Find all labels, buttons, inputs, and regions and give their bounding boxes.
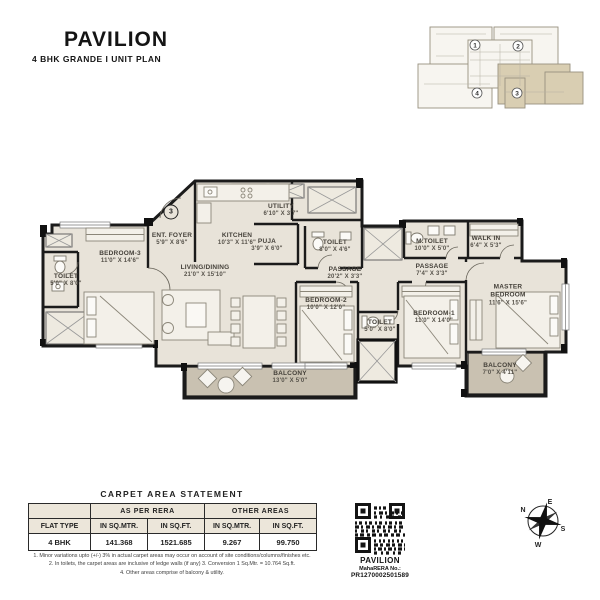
carpet-area-statement: CARPET AREA STATEMENT AS PER RERA OTHER … xyxy=(28,489,316,551)
footnote-line-2: 2. In toilets, the carpet areas are incl… xyxy=(24,560,320,568)
bed-bedroom-3 xyxy=(84,292,154,344)
bed-bedroom-2 xyxy=(300,306,354,362)
page-title: PAVILION xyxy=(32,28,168,52)
key-plan-unit-3: 3 xyxy=(515,91,519,98)
table-group-other-areas: OTHER AREAS xyxy=(205,504,317,519)
page-subtitle: 4 BHK GRANDE I UNIT PLAN xyxy=(32,54,168,64)
rera-number: PR1270002501589 xyxy=(330,572,430,579)
compass-e-label: E xyxy=(548,499,553,506)
room-label-walk-in: WALK IN6'4" X 5'3" xyxy=(470,235,501,251)
room-label-living-dining: LIVING/DINING21'0" X 15'10" xyxy=(181,264,230,280)
table-header-sqft-2: IN SQ.FT. xyxy=(260,519,317,534)
rera-project-name: PAVILION xyxy=(330,556,430,565)
table-header-sqft-1: IN SQ.FT. xyxy=(148,519,205,534)
room-label-passage-2: PASSAGE7'4" X 3'3" xyxy=(416,263,449,279)
table-header-row: FLAT TYPE IN SQ.MTR. IN SQ.FT. IN SQ.MTR… xyxy=(29,519,317,534)
room-label-ent-foyer: ENT. FOYER5'9" X 8'6" xyxy=(152,232,192,248)
table-header-sqmtr-1: IN SQ.MTR. xyxy=(91,519,148,534)
table-cell-other-sqft: 99.750 xyxy=(260,534,317,551)
unit-plan-page: 1 2 4 3 xyxy=(0,0,600,600)
table-group-header-row: AS PER RERA OTHER AREAS xyxy=(29,504,317,519)
table-header-flat-type: FLAT TYPE xyxy=(29,519,91,534)
table-data-row: 4 BHK 141.368 1521.685 9.267 99.750 xyxy=(29,534,317,551)
footnote-line-3: 4. Other areas comprise of balcony & uti… xyxy=(24,569,320,577)
room-label-bedroom-2: BEDROOM-210'0" X 12'0" xyxy=(305,297,347,313)
room-label-m-toilet: M.TOILET10'0" X 5'0" xyxy=(415,238,450,254)
table-cell-other-sqmtr: 9.267 xyxy=(205,534,260,551)
carpet-area-table: AS PER RERA OTHER AREAS FLAT TYPE IN SQ.… xyxy=(28,503,317,551)
room-label-master-bedroom: MASTER BEDROOM11'6" X 15'6" xyxy=(482,284,534,309)
room-label-passage-1: PASSAGE20'2" X 3'3" xyxy=(328,266,363,282)
header: PAVILION 4 BHK GRANDE I UNIT PLAN xyxy=(32,28,168,64)
room-label-balcony-master: BALCONY7'0" X 4'11" xyxy=(483,362,518,378)
key-plan-unit-1: 1 xyxy=(473,43,477,50)
footnote-line-1: 1. Minor variations upto (+/-) 3% in act… xyxy=(24,552,320,560)
compass-s-label: S xyxy=(561,526,566,533)
room-label-toilet-left: TOILET5'0" X 8'0" xyxy=(50,273,81,289)
room-label-balcony-center: BALCONY13'0" X 5'0" xyxy=(273,370,308,386)
table-cell-rera-sqmtr: 141.368 xyxy=(91,534,148,551)
table-cell-flat-type: 4 BHK xyxy=(29,534,91,551)
room-label-toilet-common: TOILET8'0" X 4'6" xyxy=(319,239,350,255)
compass-w-label: W xyxy=(535,542,542,549)
qr-code-icon xyxy=(352,500,408,556)
table-group-as-per-rera: AS PER RERA xyxy=(91,504,205,519)
room-label-puja: PUJA3'9" X 6'0" xyxy=(251,238,282,254)
compass-icon: E N S W xyxy=(520,498,565,549)
key-plan-unit-2: 2 xyxy=(516,44,520,51)
footnotes: 1. Minor variations upto (+/-) 3% in act… xyxy=(24,552,320,577)
key-plan: 1 2 4 3 xyxy=(418,27,583,108)
room-label-bedroom-3: BEDROOM-311'0" X 14'6" xyxy=(99,250,141,266)
room-label-utility: UTILITY6'10" X 3'7" xyxy=(264,203,299,219)
key-plan-highlight-unit xyxy=(498,64,583,108)
rera-info: PAVILION MahaRERA No.: PR1270002501589 xyxy=(330,556,430,579)
bed-bedroom-1 xyxy=(404,296,460,358)
entry-marker: 3 xyxy=(164,205,179,220)
table-header-sqmtr-2: IN SQ.MTR. xyxy=(205,519,260,534)
key-plan-unit-4: 4 xyxy=(475,91,479,98)
room-label-toilet-attached: TOILET5'0" X 8'0" xyxy=(364,319,395,335)
room-label-bedroom-1: BEDROOM-111'0" X 14'0" xyxy=(413,310,455,326)
table-cell-blank xyxy=(29,504,91,519)
carpet-area-title: CARPET AREA STATEMENT xyxy=(28,489,316,499)
compass-n-label: N xyxy=(520,507,525,514)
table-cell-rera-sqft: 1521.685 xyxy=(148,534,205,551)
